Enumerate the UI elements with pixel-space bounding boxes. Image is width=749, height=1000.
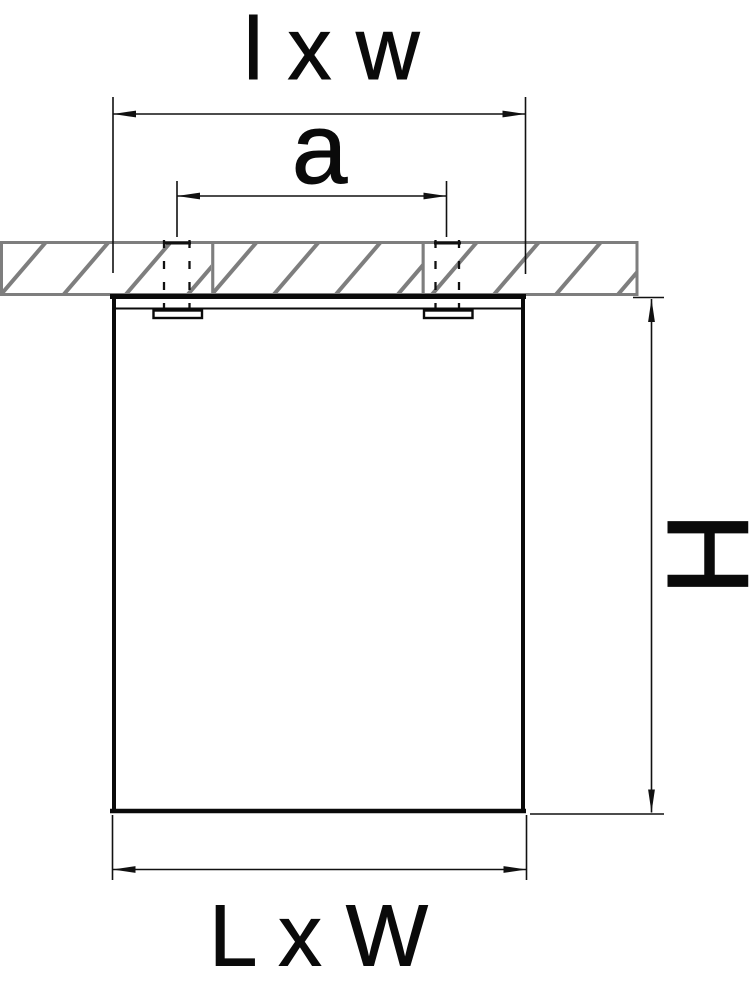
- svg-text:H: H: [644, 512, 749, 595]
- svg-text:a: a: [292, 93, 348, 205]
- svg-text:L x W: L x W: [209, 888, 428, 985]
- svg-text:l x w: l x w: [244, 0, 420, 98]
